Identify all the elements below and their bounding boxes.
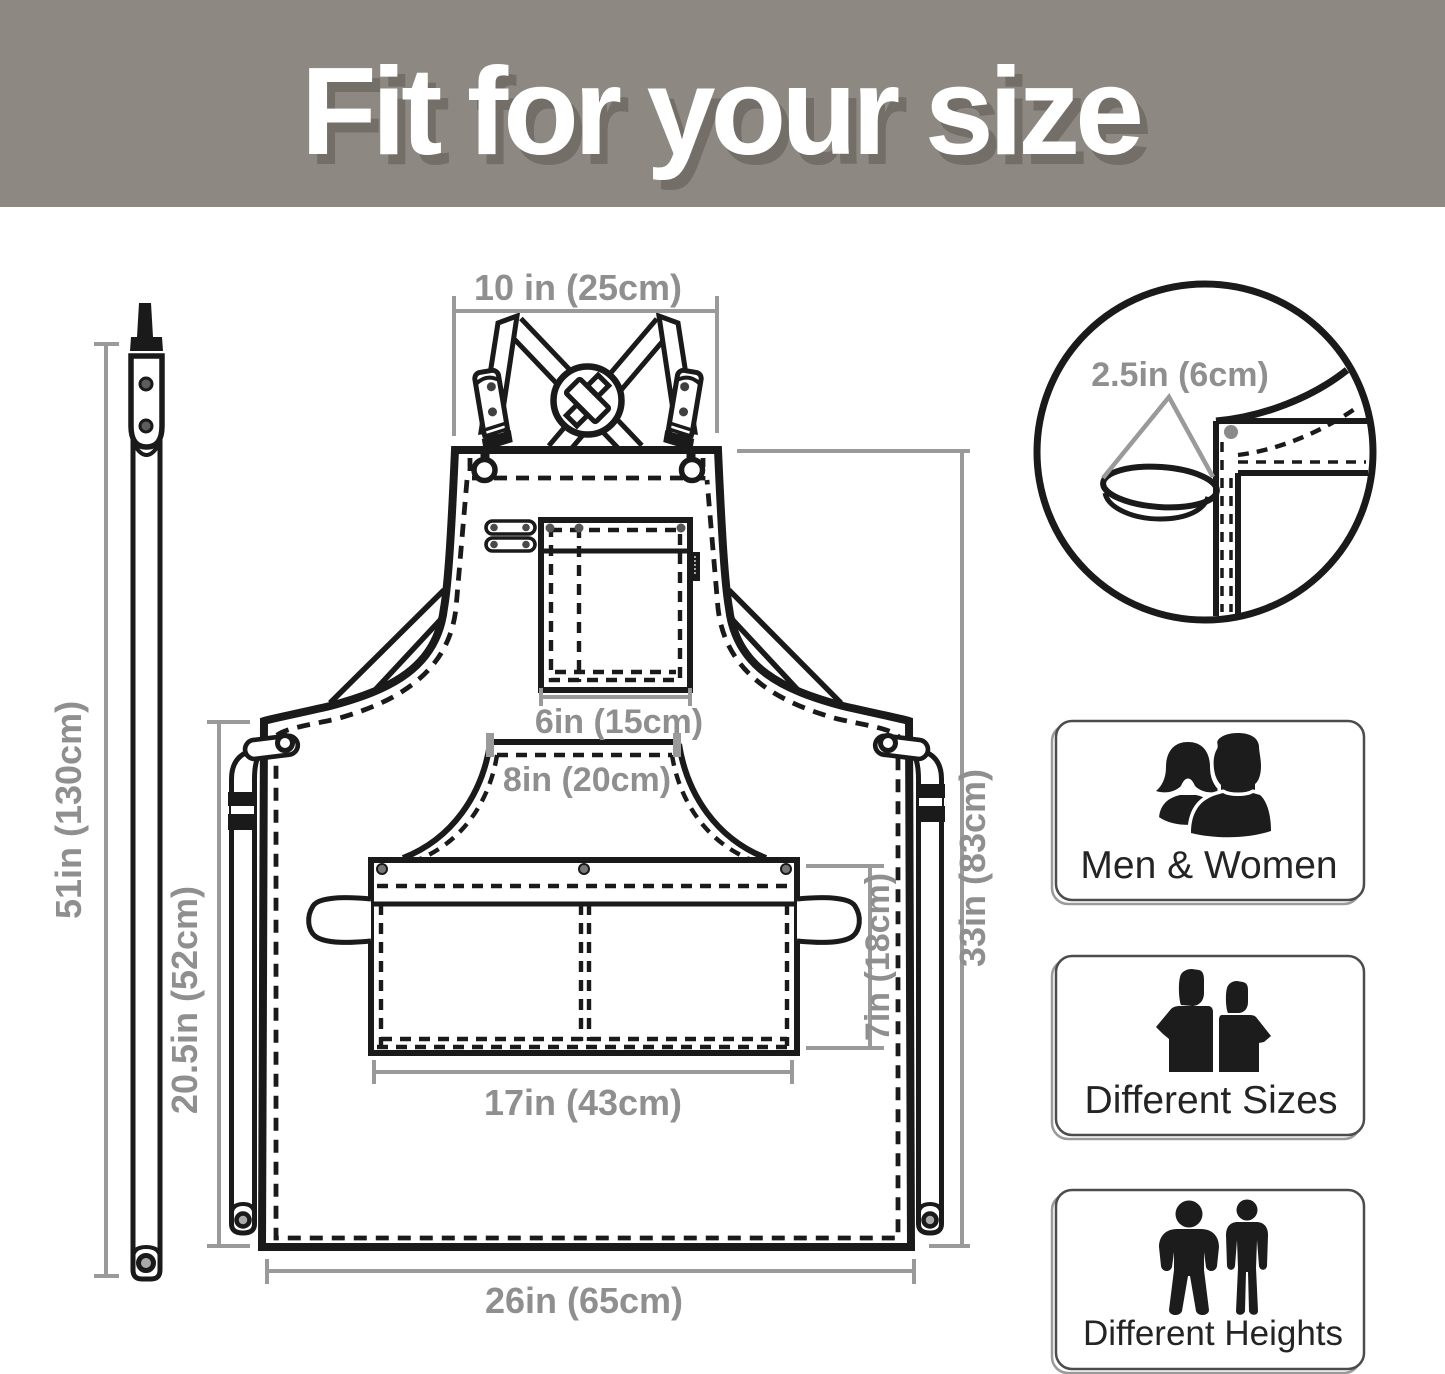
svg-text:Fit for your size: Fit for your size [301, 43, 1140, 181]
svg-text:20.5in (52cm): 20.5in (52cm) [164, 886, 205, 1114]
svg-text:17in (43cm): 17in (43cm) [484, 1082, 682, 1123]
svg-text:51in (130cm): 51in (130cm) [48, 701, 89, 919]
svg-text:Men & Women: Men & Women [1080, 844, 1337, 887]
svg-text:33in (83cm): 33in (83cm) [952, 769, 993, 967]
svg-text:Different Heights: Different Heights [1083, 1314, 1343, 1353]
svg-text:10 in (25cm): 10 in (25cm) [474, 267, 682, 308]
svg-text:Different Sizes: Different Sizes [1085, 1079, 1338, 1122]
svg-text:7in (18cm): 7in (18cm) [859, 873, 897, 1041]
svg-text:2.5in (6cm): 2.5in (6cm) [1091, 356, 1269, 394]
svg-text:26in (65cm): 26in (65cm) [485, 1280, 683, 1321]
svg-text:8in (20cm): 8in (20cm) [503, 761, 671, 799]
